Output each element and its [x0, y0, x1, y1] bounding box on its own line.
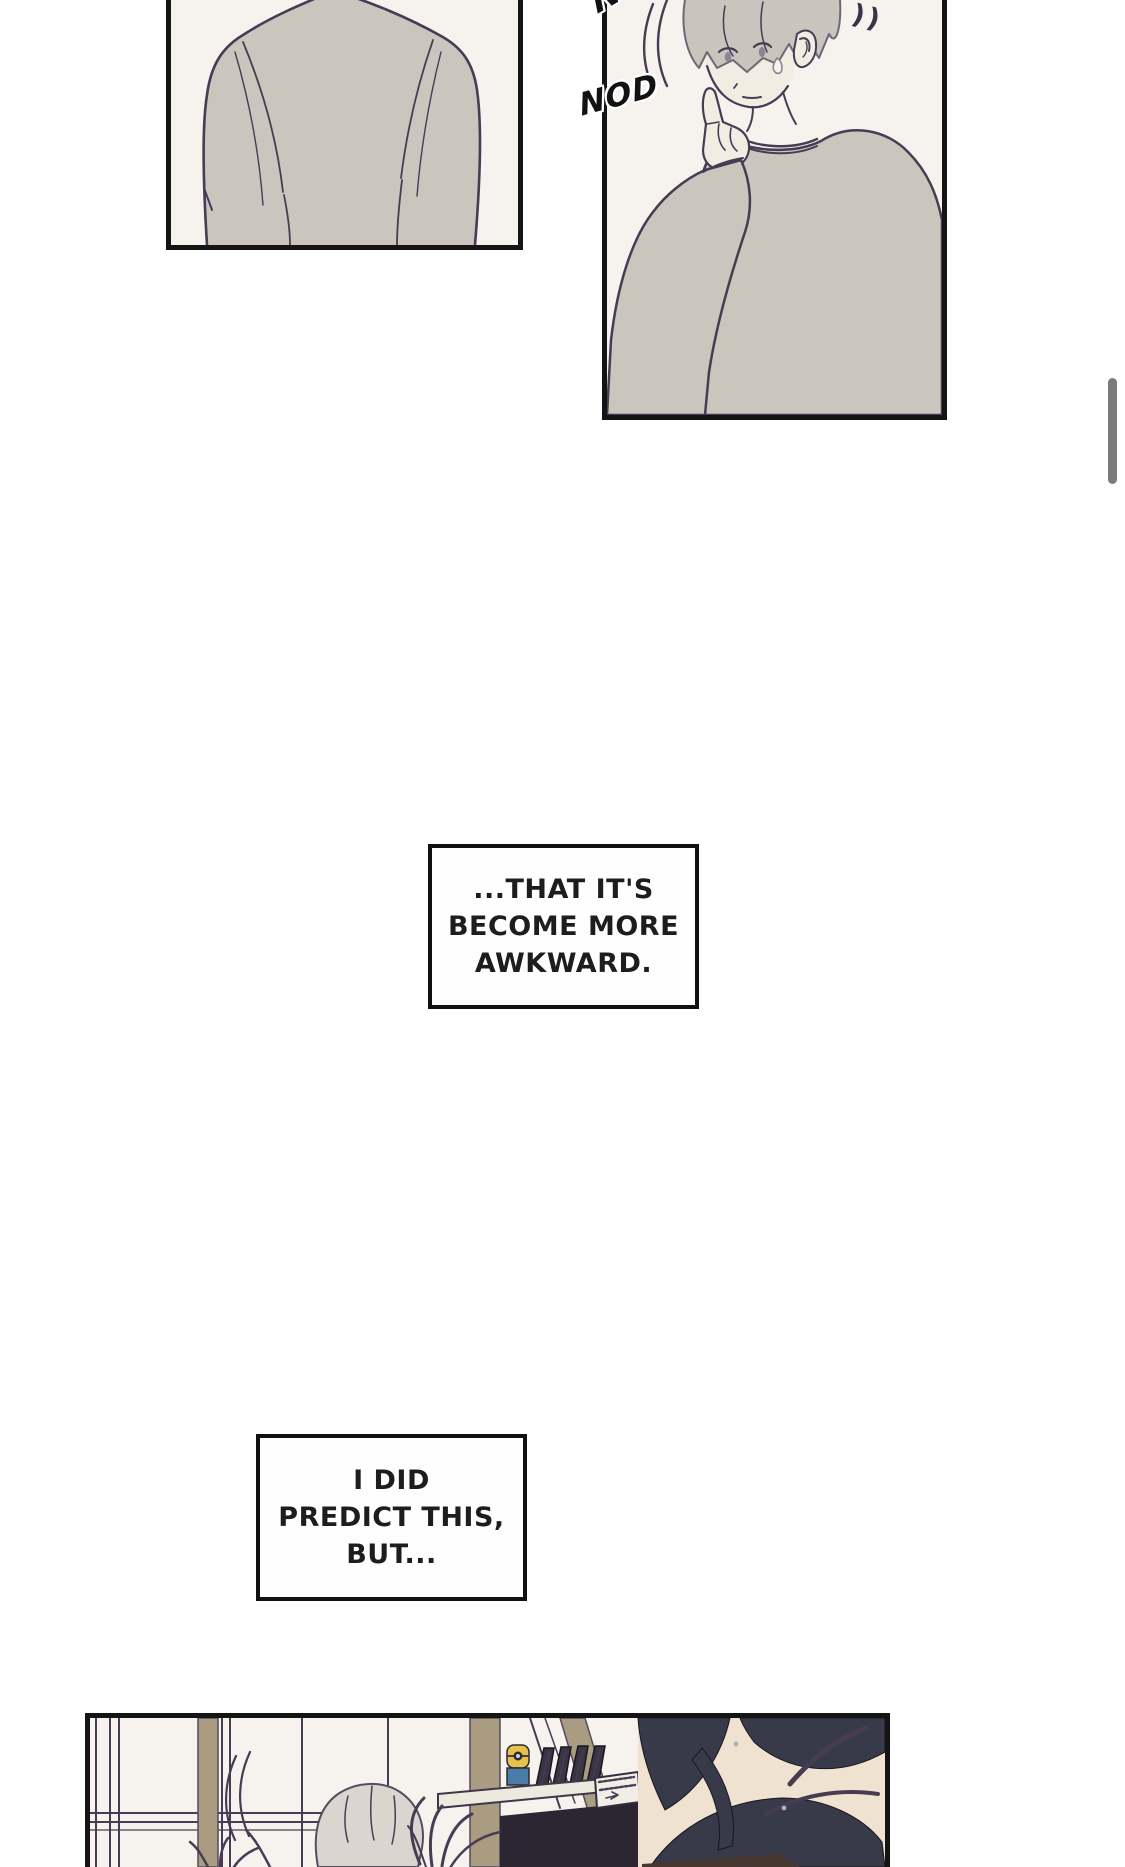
panel-back-view: [166, 0, 523, 250]
caption-box-predict: I DID PREDICT THIS, BUT...: [256, 1434, 527, 1601]
comic-reader-viewport[interactable]: NOD NOD )) ...THAT IT'S BECOME MORE AWKW…: [0, 0, 1125, 1867]
panel-room-scene: [85, 1713, 890, 1867]
caption-line: I DID: [353, 1462, 430, 1499]
back-torso-drawing: [171, 0, 518, 245]
caption-line: PREDICT THIS,: [278, 1499, 504, 1536]
caption-line: ...THAT IT'S: [473, 871, 654, 908]
panel-nodding-man: [602, 0, 947, 420]
nodding-man-drawing: [607, 0, 942, 415]
caption-line: BECOME MORE: [448, 908, 679, 945]
scrollbar-thumb[interactable]: [1108, 378, 1117, 484]
caption-box-awkward: ...THAT IT'S BECOME MORE AWKWARD.: [428, 844, 699, 1009]
caption-line: AWKWARD.: [475, 945, 652, 982]
caption-line: BUT...: [346, 1536, 437, 1573]
room-scene-drawing: [90, 1718, 885, 1867]
